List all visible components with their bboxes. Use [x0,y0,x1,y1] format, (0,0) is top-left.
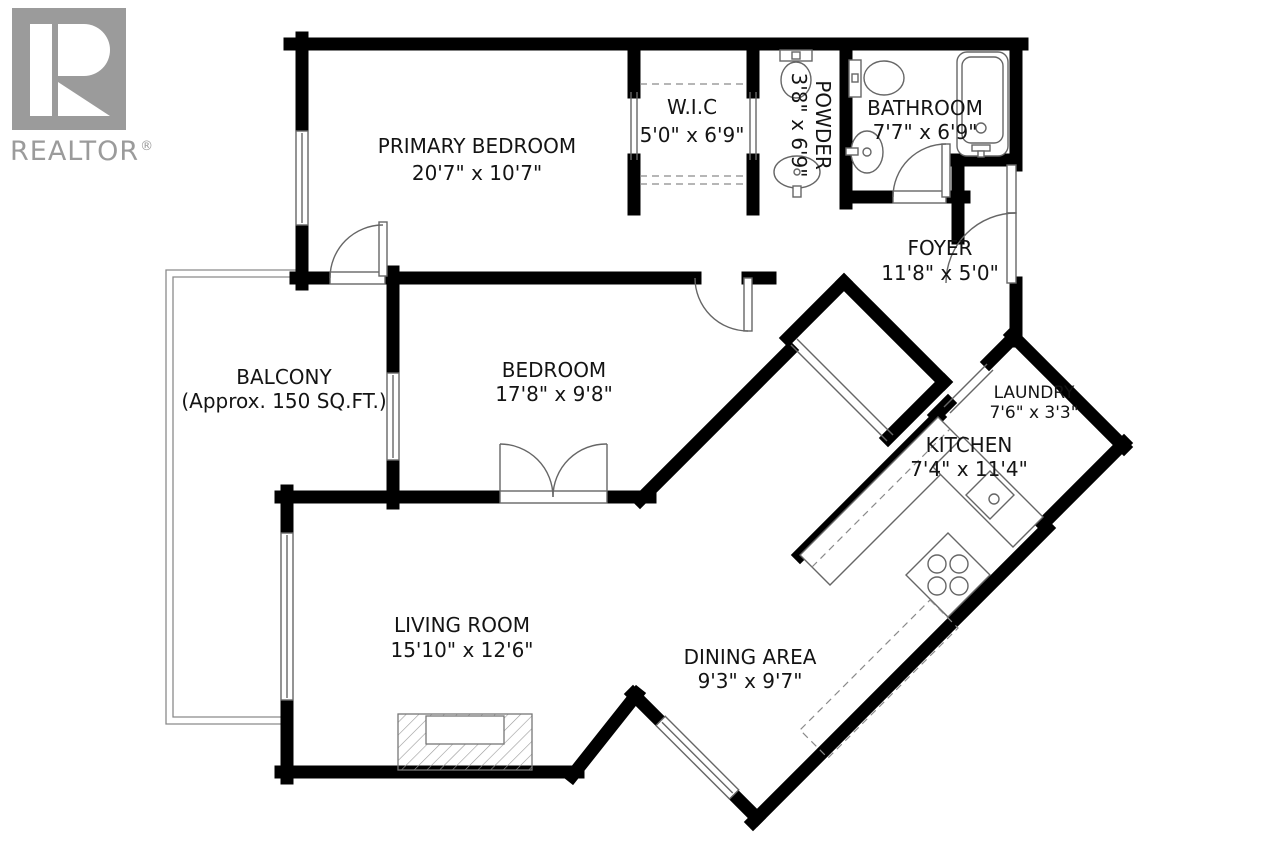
door-leaf [942,144,950,197]
wall-closet-nw [788,282,844,338]
room-label-bedroom: BEDROOM [502,358,606,382]
room-dims-primary-bedroom: 20'7" x 10'7" [412,161,542,185]
window-bedroom [387,373,399,460]
fireplace [398,714,532,770]
sliding-door-wic-right [750,92,756,160]
room-label-living-room: LIVING ROOM [394,613,530,637]
room-label-laundry: LAUNDRY [994,383,1075,403]
floor-plan-page: REALTOR® [0,0,1280,853]
door-arc [553,444,607,497]
realtor-r-bowl [58,24,110,76]
wall-laundry-nw-stub-upper [989,339,1012,362]
door-french-bedroom [500,444,607,503]
door-leaf [744,278,752,331]
door-bathroom [893,144,950,203]
room-label-primary-bedroom: PRIMARY BEDROOM [378,134,576,158]
room-label-powder-group: POWDER 3'8" x 6'9" [787,73,835,178]
door-leaf [379,222,387,276]
door-leaf [1007,213,1016,283]
room-dims-foyer: 11'8" x 5'0" [881,261,999,285]
realtor-logo: REALTOR® [10,8,154,167]
sliding-door-wic-left [631,92,637,160]
door-arc [330,225,383,278]
room-label-balcony: BALCONY [236,365,332,389]
toilet-bathroom [849,60,904,97]
door-arc [695,278,748,331]
room-dims-laundry: 7'6" x 3'3" [989,403,1078,423]
room-dims-dining-area: 9'3" x 9'7" [698,669,803,693]
room-label-bathroom: BATHROOM [867,96,983,120]
window-living-room [281,533,293,700]
door-arc [893,144,946,197]
window-primary-bedroom [296,131,308,225]
door-bedroom [695,278,752,331]
realtor-wordmark: REALTOR® [10,136,154,167]
door-primary-bedroom-balcony [330,222,387,284]
kitchen-counter-se-dashed [800,600,958,758]
door-arc [500,444,553,497]
room-dims-wic: 5'0" x 6'9" [640,123,745,147]
room-label-foyer: FOYER [908,236,973,260]
wall-laundry-se [1043,443,1124,524]
room-dims-living-room: 15'10" x 12'6" [390,638,533,662]
room-label-kitchen: KITCHEN [926,433,1013,457]
realtor-r-stem [30,24,52,116]
room-label-powder: POWDER [811,80,835,170]
room-dims-bathroom: 7'7" x 6'9" [873,120,978,144]
wall-bedroom-se [640,350,790,500]
wall-dining-peak-left [572,694,637,776]
room-label-wic: W.I.C [667,95,717,119]
sliding-door-closet [791,339,893,441]
room-dims-powder: 3'8" x 6'9" [787,73,811,178]
window-dining [656,716,739,799]
room-dims-kitchen: 7'4" x 11'4" [910,457,1028,481]
wall-closet-ne [844,282,944,382]
room-label-dining-area: DINING AREA [684,645,817,669]
room-dims-balcony: (Approx. 150 SQ.FT.) [181,389,386,413]
room-dims-bedroom: 17'8" x 9'8" [495,382,613,406]
floor-plan: REALTOR® [0,0,1280,853]
door-frame [1007,165,1016,213]
